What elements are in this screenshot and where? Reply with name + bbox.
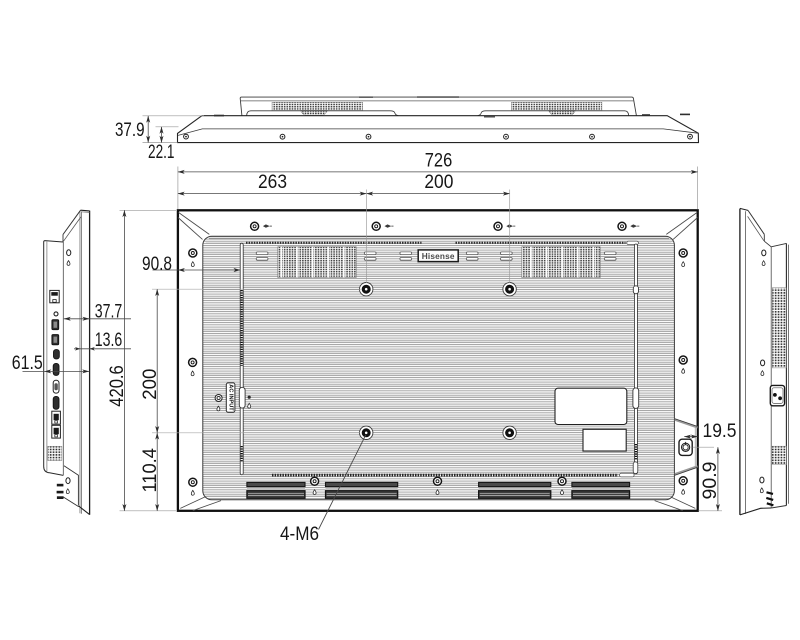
svg-text:22.1: 22.1 xyxy=(148,142,175,163)
svg-text:61.5: 61.5 xyxy=(12,353,43,374)
svg-text:90.9: 90.9 xyxy=(700,462,721,500)
svg-text:Hisense: Hisense xyxy=(422,251,455,261)
svg-text:200: 200 xyxy=(140,369,161,400)
svg-text:4-M6: 4-M6 xyxy=(280,524,319,545)
svg-text:13.6: 13.6 xyxy=(95,330,123,351)
svg-text:90.8: 90.8 xyxy=(142,254,172,275)
svg-text:19.5: 19.5 xyxy=(703,421,737,442)
svg-text:37.9: 37.9 xyxy=(115,120,145,141)
svg-text:110.4: 110.4 xyxy=(140,448,161,493)
svg-text:200: 200 xyxy=(424,172,453,193)
svg-text:420.6: 420.6 xyxy=(107,365,128,407)
svg-text:263: 263 xyxy=(258,172,287,193)
svg-text:AC INPUT: AC INPUT xyxy=(228,384,234,411)
svg-text:726: 726 xyxy=(425,150,453,171)
svg-text:37.7: 37.7 xyxy=(95,302,123,323)
